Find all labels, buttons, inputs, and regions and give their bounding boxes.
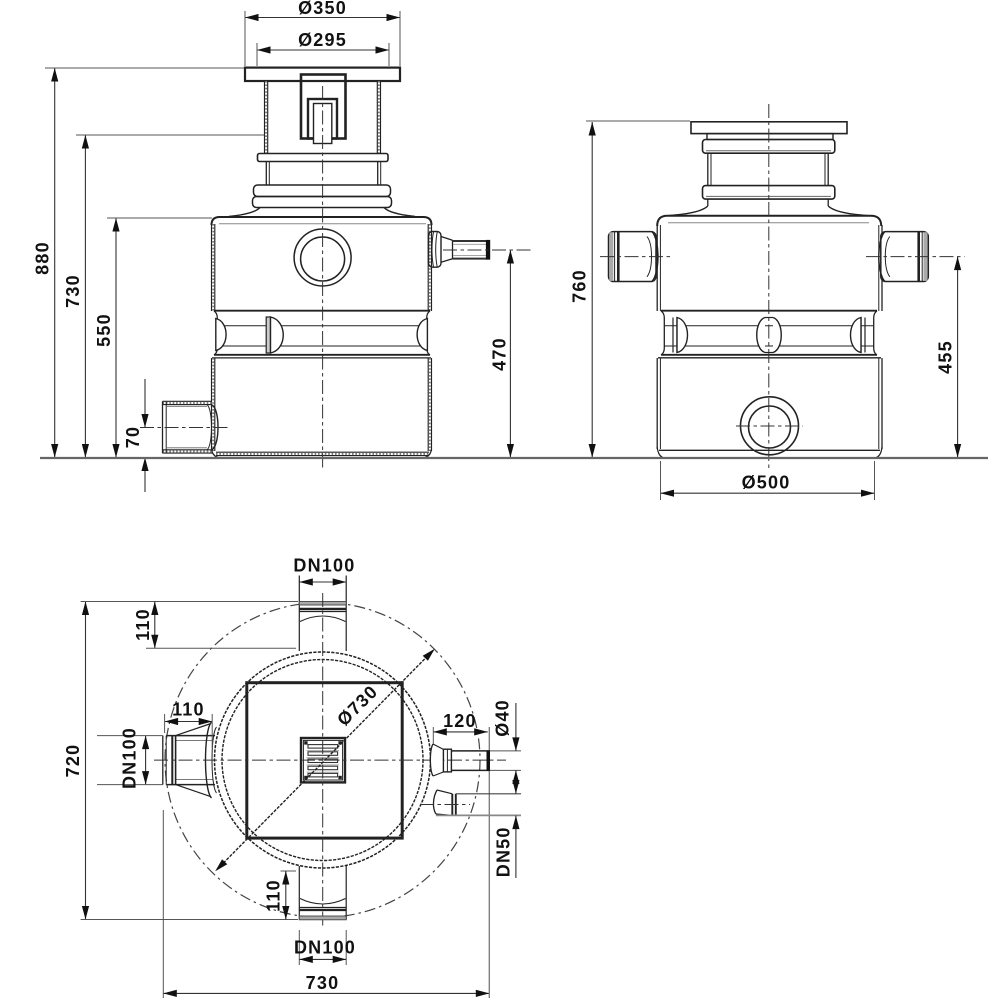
svg-text:760: 760 (570, 269, 590, 303)
svg-text:Ø295: Ø295 (298, 30, 347, 50)
svg-text:70: 70 (123, 426, 143, 448)
svg-text:880: 880 (33, 241, 53, 275)
svg-text:DN50: DN50 (493, 826, 513, 877)
svg-text:120: 120 (443, 711, 477, 731)
svg-text:Ø500: Ø500 (742, 473, 791, 493)
svg-text:730: 730 (63, 274, 83, 308)
svg-text:Ø40: Ø40 (493, 699, 513, 737)
svg-text:455: 455 (936, 340, 956, 374)
svg-text:110: 110 (133, 608, 153, 641)
svg-text:720: 720 (63, 744, 83, 778)
svg-text:470: 470 (490, 337, 510, 371)
svg-text:DN100: DN100 (293, 556, 355, 576)
svg-text:730: 730 (306, 973, 340, 993)
svg-text:110: 110 (263, 879, 283, 912)
svg-text:DN100: DN100 (294, 938, 356, 958)
svg-text:Ø350: Ø350 (298, 0, 347, 18)
svg-text:550: 550 (94, 313, 114, 347)
svg-text:110: 110 (172, 700, 205, 720)
svg-text:DN100: DN100 (119, 727, 139, 789)
